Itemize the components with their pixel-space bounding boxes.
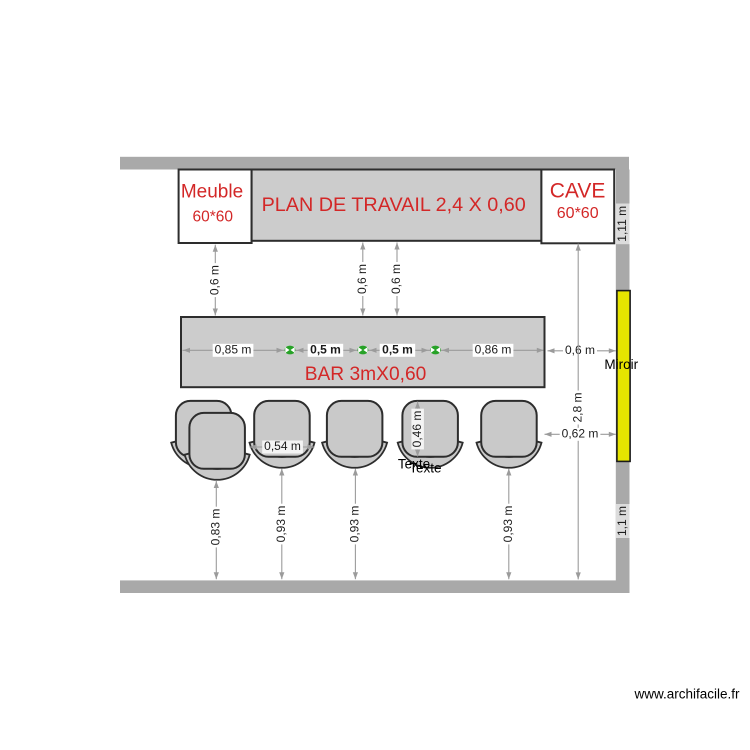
svg-text:60*60: 60*60 (557, 205, 599, 222)
svg-text:0,6 m: 0,6 m (355, 264, 369, 294)
svg-text:Meuble: Meuble (181, 182, 243, 203)
svg-text:0,6 m: 0,6 m (389, 264, 403, 294)
svg-text:BAR 3mX0,60: BAR 3mX0,60 (305, 364, 427, 385)
svg-text:0,6 m: 0,6 m (565, 343, 595, 357)
svg-text:0,62 m: 0,62 m (562, 426, 599, 440)
svg-text:0,54 m: 0,54 m (264, 439, 301, 453)
svg-text:0,83 m: 0,83 m (208, 509, 222, 546)
svg-text:Texte: Texte (409, 460, 441, 475)
svg-text:0,93 m: 0,93 m (348, 506, 362, 543)
svg-text:0,6 m: 0,6 m (207, 265, 221, 295)
svg-text:www.archifacile.fr: www.archifacile.fr (633, 687, 740, 702)
svg-text:60*60: 60*60 (193, 209, 234, 226)
svg-text:0,46 m: 0,46 m (410, 411, 424, 448)
svg-text:PLAN DE TRAVAIL 2,4 X 0,60: PLAN DE TRAVAIL 2,4 X 0,60 (262, 194, 526, 216)
svg-text:1,1 m: 1,1 m (615, 506, 629, 536)
svg-text:1,11 m: 1,11 m (615, 206, 629, 242)
svg-text:Miroir: Miroir (604, 357, 638, 372)
svg-text:0,93 m: 0,93 m (274, 506, 288, 543)
svg-text:CAVE: CAVE (550, 180, 606, 203)
svg-text:0,86 m: 0,86 m (475, 342, 512, 356)
svg-text:0,85 m: 0,85 m (215, 342, 252, 356)
svg-text:0,5 m: 0,5 m (382, 342, 413, 356)
svg-text:0,93 m: 0,93 m (501, 506, 515, 543)
svg-text:0,5 m: 0,5 m (310, 342, 341, 356)
svg-text:2,8 m: 2,8 m (570, 392, 584, 422)
